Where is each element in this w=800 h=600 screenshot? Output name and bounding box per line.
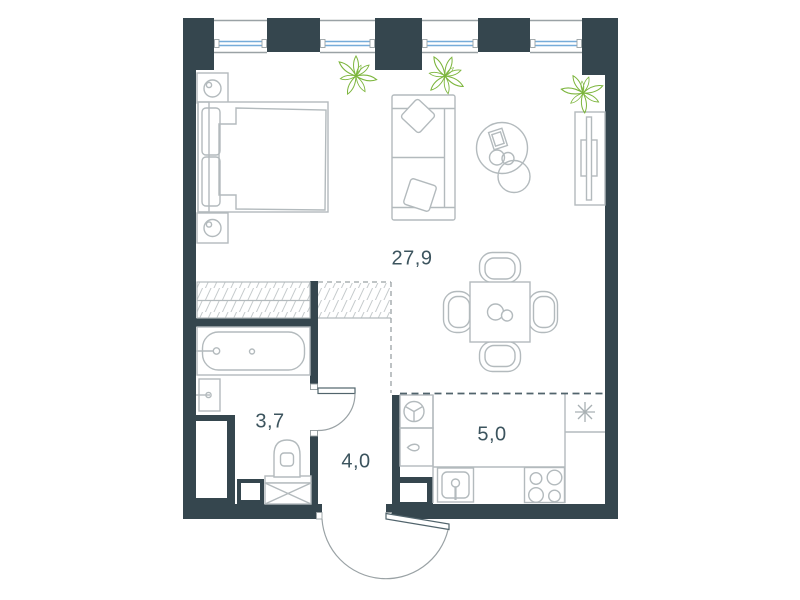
- wall-bathroom-top: [196, 318, 318, 327]
- nightstand-bottom: [197, 213, 228, 243]
- dining-set: [444, 253, 558, 372]
- kitchen-sink: [438, 468, 474, 502]
- bathroom-door-leaf: [318, 388, 355, 394]
- nightstand-top: [197, 73, 228, 103]
- hinge-plate: [311, 384, 318, 390]
- toilet: [274, 440, 300, 477]
- bathroom-door-swing-arc: [318, 394, 355, 431]
- washing-machine: [265, 483, 311, 504]
- area-label-kitchen: 5,0: [477, 424, 506, 447]
- plate: [488, 304, 504, 320]
- vent-cabinet: [400, 395, 433, 428]
- window-3: [422, 21, 478, 53]
- hinge-plate: [311, 431, 318, 437]
- water-drop-icon: [408, 444, 420, 450]
- area-label-hallway: 4,0: [341, 451, 370, 474]
- dining-chair: [480, 253, 521, 283]
- stove-burners: [525, 468, 565, 503]
- entrance-door-swing-arc: [322, 519, 448, 579]
- dining-chair: [480, 342, 521, 372]
- window-1: [214, 21, 267, 53]
- window-4: [530, 21, 582, 53]
- tv-screen: [587, 117, 592, 200]
- pier-top-left-corner: [183, 18, 214, 70]
- pier-top-2: [267, 18, 320, 52]
- cabinet-drop: [400, 428, 433, 466]
- area-label-bathroom: 3,7: [255, 411, 284, 434]
- dining-chair: [444, 292, 473, 333]
- wall-kitchen-left: [392, 395, 400, 477]
- floor-plan-page: 27,9 3,7 4,0 5,0: [0, 0, 800, 600]
- extractor-vent-icon: [404, 402, 424, 422]
- wall-bottom-right: [386, 504, 618, 519]
- area-label-living-room: 27,9: [392, 248, 433, 271]
- wall-bathroom-hall-upper: [310, 281, 318, 390]
- floor-plan-drawing: [0, 0, 800, 600]
- wall-bottom-left: [183, 504, 322, 519]
- window-2: [320, 21, 375, 53]
- wall-right: [605, 18, 618, 519]
- wardrobe-hallway-dashed: [318, 283, 391, 318]
- hinge-plate: [317, 513, 323, 520]
- plant-icon: [337, 56, 377, 95]
- bedroom-furniture: [197, 73, 328, 243]
- plate: [502, 310, 513, 321]
- asterisk-fixture-icon: [575, 402, 595, 422]
- plant-icon: [421, 51, 472, 101]
- pier-top-3-column: [375, 18, 422, 70]
- dining-chair: [529, 292, 558, 333]
- pier-top-4: [478, 18, 530, 52]
- living-furniture: [392, 95, 605, 220]
